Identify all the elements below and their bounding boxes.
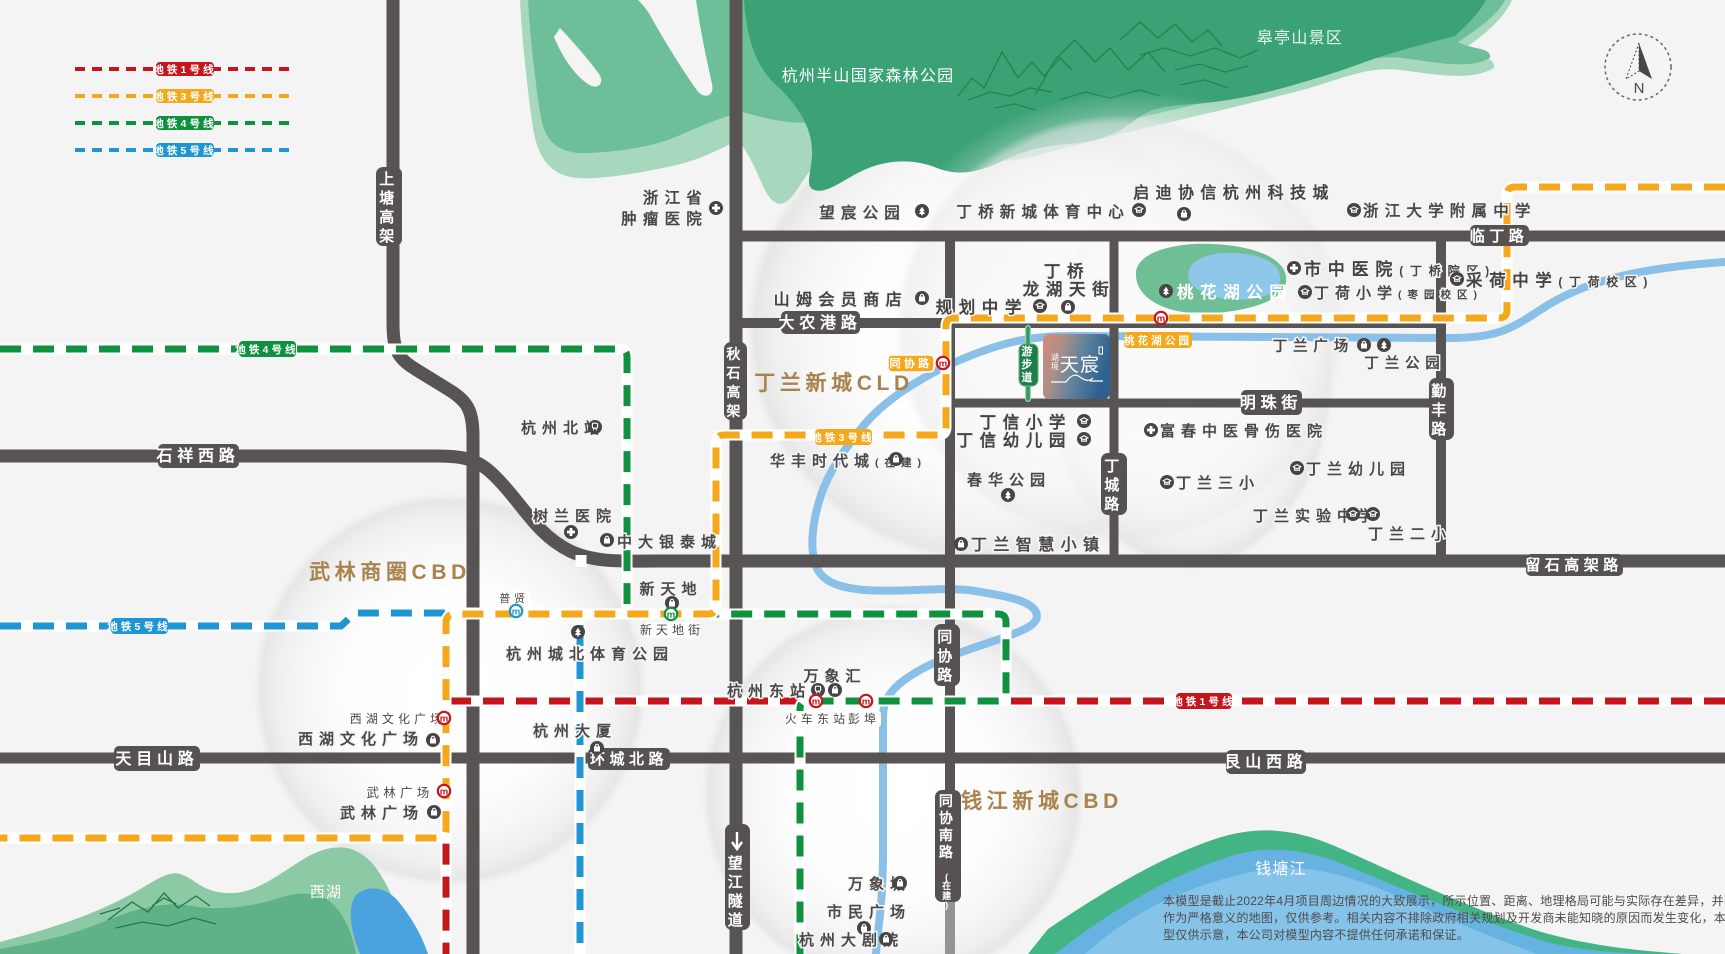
svg-text:望宸公园: 望宸公园 [819,203,906,222]
svg-text:同协路: 同协路 [890,356,933,370]
svg-text:临丁路: 临丁路 [1470,227,1529,245]
svg-text:作为严格意义的地图，仅供参考。相关内容不排除政府相关规划及开: 作为严格意义的地图，仅供参考。相关内容不排除政府相关规划及开发商未能知晓的原因而… [1163,910,1725,925]
svg-text:浙江大学附属中学: 浙江大学附属中学 [1363,201,1537,220]
svg-text:桃花湖公园: 桃花湖公园 [1177,282,1293,302]
svg-text:浙江省: 浙江省 [643,188,708,207]
svg-text:地铁4号线: 地铁4号线 [235,343,299,356]
svg-text:丁兰新城CLD: 丁兰新城CLD [754,371,914,395]
svg-text:丁兰公园: 丁兰公园 [1364,354,1445,372]
svg-text:丁兰智慧小镇: 丁兰智慧小镇 [971,535,1105,554]
svg-text:湖境: 湖境 [1051,353,1059,371]
svg-text:地铁3号线: 地铁3号线 [153,90,217,103]
svg-text:地铁5号线: 地铁5号线 [107,620,171,633]
svg-text:新天地街: 新天地街 [640,622,704,637]
svg-text:西湖文化广场: 西湖文化广场 [350,711,446,726]
svg-text:本模型是截止2022年4月项目周边情况的大致展示，所示位置、: 本模型是截止2022年4月项目周边情况的大致展示，所示位置、距离、地理格局可能与… [1163,893,1725,908]
svg-text:武林广场: 武林广场 [366,786,433,800]
svg-text:同协南路: 同协南路 [939,793,957,860]
svg-text:彭埠: 彭埠 [848,712,880,726]
svg-text:丁信小学: 丁信小学 [980,412,1072,432]
svg-text:钱江新城CBD: 钱江新城CBD [961,789,1123,813]
svg-text:地铁5号线: 地铁5号线 [153,144,217,157]
svg-text:中大银泰城: 中大银泰城 [617,533,722,551]
svg-text:杭州大厦: 杭州大厦 [533,722,617,740]
svg-text:钱塘江: 钱塘江 [1255,860,1307,878]
svg-text:新天地: 新天地 [639,580,702,598]
svg-text:丁兰广场: 丁兰广场 [1273,337,1354,355]
svg-text:肿瘤医院: 肿瘤医院 [621,209,708,228]
svg-text:西湖文化广场: 西湖文化广场 [298,730,424,748]
svg-text:N: N [1634,80,1645,97]
svg-text:同协路: 同协路 [937,629,957,684]
svg-text:杭州东站: 杭州东站 [727,682,811,700]
svg-text:地铁1号线: 地铁1号线 [1172,695,1236,708]
svg-text:地铁1号线: 地铁1号线 [153,63,217,76]
svg-text:武林商圈CBD: 武林商圈CBD [309,560,471,584]
svg-text:丁兰二小: 丁兰二小 [1368,525,1452,543]
svg-text:皋亭山景区: 皋亭山景区 [1257,29,1343,47]
svg-text:龙湖天街: 龙湖天街 [1022,279,1115,299]
svg-text:地铁4号线: 地铁4号线 [153,117,217,130]
svg-text:型仅供示意，本公司对模型内容不提供任何承诺和保证。: 型仅供示意，本公司对模型内容不提供任何承诺和保证。 [1163,927,1469,942]
svg-text:桃花湖公园: 桃花湖公园 [1124,334,1192,347]
svg-text:明珠街: 明珠街 [1240,393,1302,412]
svg-text:地铁3号线: 地铁3号线 [811,431,875,444]
svg-text:杭州城北体育公园: 杭州城北体育公园 [506,645,674,663]
svg-text:丁信幼儿园: 丁信幼儿园 [957,430,1073,450]
svg-text:市民广场: 市民广场 [827,903,911,921]
svg-text:游步道: 游步道 [1021,344,1035,384]
svg-text:勤丰路: 勤丰路 [1431,382,1451,438]
svg-text:石祥西路: 石祥西路 [155,446,239,465]
svg-text:普贤: 普贤 [499,591,528,605]
svg-text:艮山西路: 艮山西路 [1224,752,1307,771]
svg-text:杭州半山国家森林公园: 杭州半山国家森林公园 [782,67,955,85]
svg-text:规划中学: 规划中学 [936,297,1028,317]
svg-text:山姆会员商店: 山姆会员商店 [774,290,908,309]
svg-text:西湖: 西湖 [310,884,342,901]
svg-text:树兰医院: 树兰医院 [533,507,617,525]
svg-text:武林广场: 武林广场 [340,804,424,822]
svg-text:丁兰三小: 丁兰三小 [1176,474,1260,492]
svg-text:丁桥新城体育中心: 丁桥新城体育中心 [956,202,1130,221]
svg-text:万象汇: 万象汇 [802,667,866,685]
svg-text:启迪协信杭州科技城: 启迪协信杭州科技城 [1133,183,1335,202]
svg-text:天目山路: 天目山路 [115,749,198,768]
svg-text:丁桥: 丁桥 [1044,262,1090,281]
svg-text:丁兰幼儿园: 丁兰幼儿园 [1306,460,1411,478]
svg-text:大农港路: 大农港路 [778,313,861,332]
svg-text:春华公园: 春华公园 [967,471,1051,489]
svg-text:天宸: 天宸 [1060,354,1100,376]
svg-text:丁城路: 丁城路 [1104,458,1124,513]
svg-text:火车东站: 火车东站 [785,711,849,726]
svg-text:留石高架路: 留石高架路 [1525,556,1623,574]
svg-text:富春中医骨伤医院: 富春中医骨伤医院 [1160,422,1328,440]
svg-text:丁兰实验中学: 丁兰实验中学 [1253,507,1379,525]
